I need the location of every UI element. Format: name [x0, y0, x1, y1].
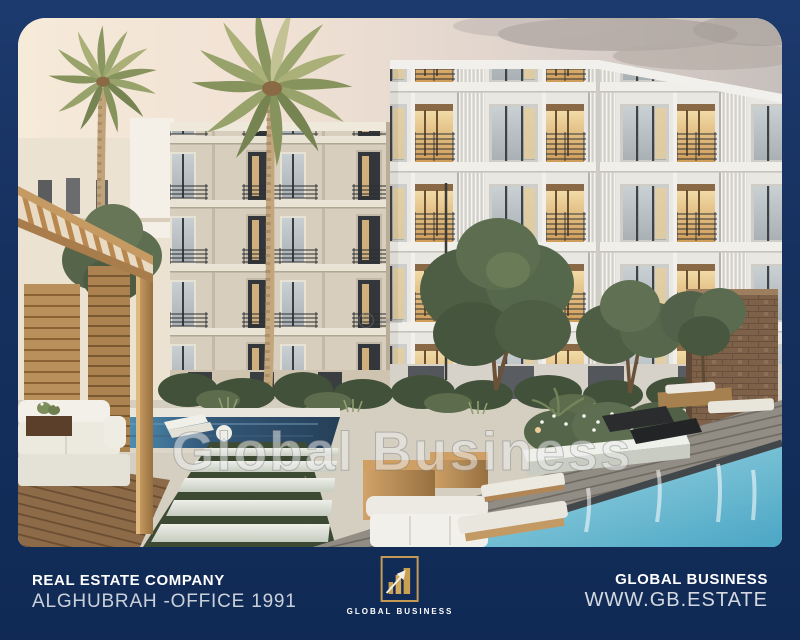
company-name: REAL ESTATE COMPANY: [32, 572, 297, 589]
footer-bar: REAL ESTATE COMPANY ALGHUBRAH -OFFICE 19…: [0, 547, 800, 640]
flyer-frame: © Global Business REAL ESTATE COMPANY AL…: [0, 0, 800, 640]
watermark-text: Global Business: [172, 420, 633, 482]
logo-label: GLOBAL BUSINESS: [347, 607, 454, 616]
brand-website: WWW.GB.ESTATE: [585, 589, 768, 612]
property-render: © Global Business: [18, 18, 782, 547]
buildings-logo-icon: [385, 560, 415, 598]
company-info: REAL ESTATE COMPANY ALGHUBRAH -OFFICE 19…: [32, 572, 297, 613]
brand-info: GLOBAL BUSINESS WWW.GB.ESTATE: [585, 571, 768, 612]
brand-name: GLOBAL BUSINESS: [585, 571, 768, 588]
company-office: ALGHUBRAH -OFFICE 1991: [32, 591, 297, 613]
company-logo: GLOBAL BUSINESS: [347, 556, 454, 616]
property-photo: © Global Business: [18, 18, 782, 547]
left-apartment-building: [170, 122, 391, 400]
svg-text:©: ©: [358, 308, 374, 333]
logo-frame: [381, 556, 419, 602]
